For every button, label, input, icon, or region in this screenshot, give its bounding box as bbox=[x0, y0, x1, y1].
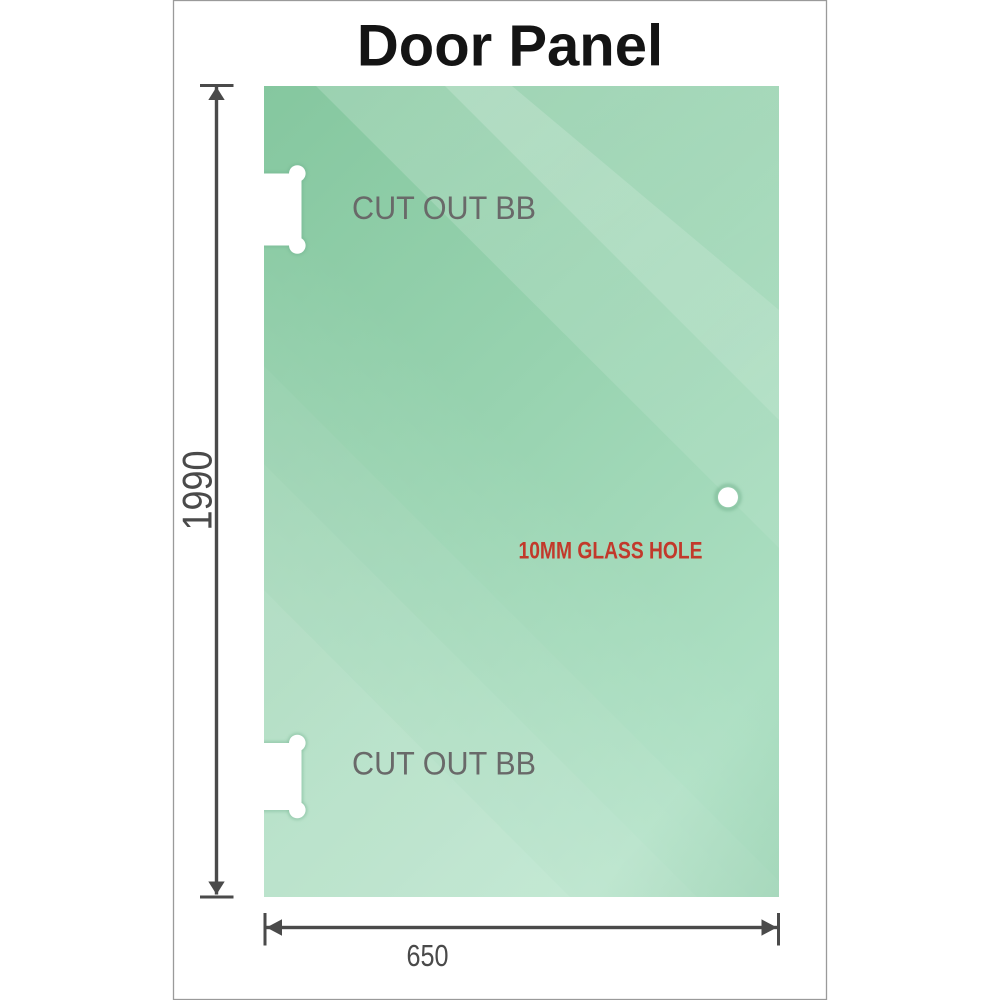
svg-text:650: 650 bbox=[407, 938, 449, 973]
svg-text:Door Panel: Door Panel bbox=[357, 14, 663, 79]
svg-text:1990: 1990 bbox=[174, 451, 221, 531]
svg-text:10MM GLASS HOLE: 10MM GLASS HOLE bbox=[519, 537, 703, 564]
svg-text:CUT OUT BB: CUT OUT BB bbox=[352, 190, 536, 226]
svg-text:CUT OUT BB: CUT OUT BB bbox=[352, 746, 536, 782]
